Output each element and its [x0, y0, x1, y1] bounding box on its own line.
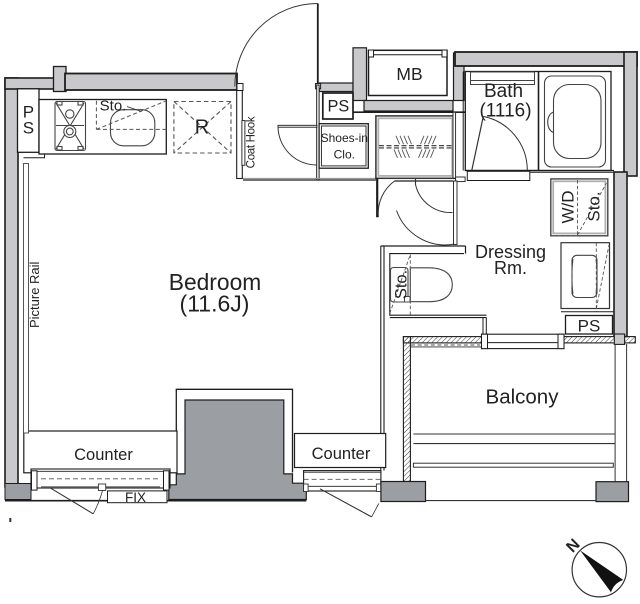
svg-text:Sto.: Sto.	[393, 270, 411, 299]
svg-text:Balcony: Balcony	[486, 386, 560, 409]
svg-text:Counter: Counter	[312, 445, 371, 463]
svg-text:Counter: Counter	[74, 446, 133, 464]
svg-text:(11.6J): (11.6J)	[180, 291, 250, 317]
svg-text:Rm.: Rm.	[494, 258, 527, 278]
svg-text:Clo.: Clo.	[334, 147, 355, 161]
svg-text:Shoes-in: Shoes-in	[321, 131, 368, 145]
svg-text:R: R	[195, 117, 209, 139]
svg-text:PS: PS	[578, 317, 601, 336]
svg-text:Bath: Bath	[484, 81, 523, 102]
svg-text:FIX: FIX	[125, 490, 146, 505]
svg-text:Coat Hook: Coat Hook	[245, 116, 257, 168]
svg-text:Picture Rail: Picture Rail	[27, 261, 42, 328]
svg-text:W/D: W/D	[559, 190, 578, 223]
svg-text:MB: MB	[396, 64, 422, 84]
svg-text:PS: PS	[328, 98, 350, 116]
svg-text:Sto.: Sto.	[100, 97, 127, 114]
svg-text:(1116): (1116)	[479, 101, 531, 122]
svg-text:S: S	[23, 119, 34, 138]
svg-text:Sto.: Sto.	[585, 191, 604, 221]
